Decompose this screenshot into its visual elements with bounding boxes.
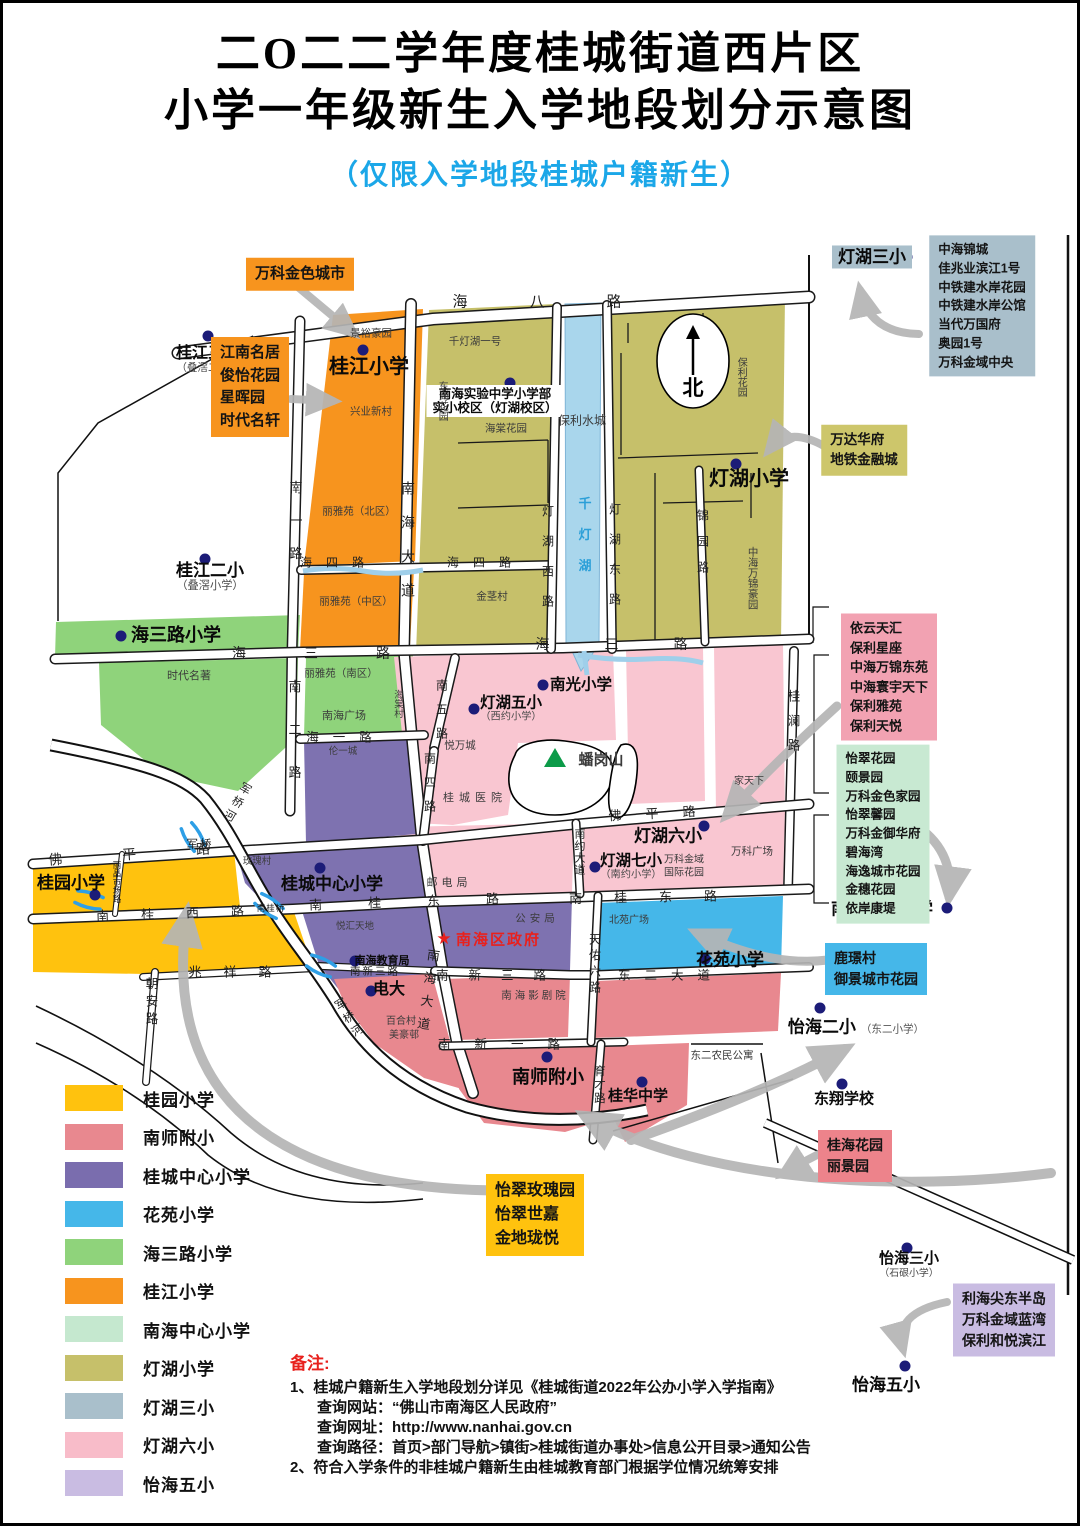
area-label-5: 南海广场: [322, 710, 366, 724]
area-label-6: 时代名著: [167, 670, 211, 684]
area-label-3: 丽雅苑（中区）: [319, 595, 393, 608]
road-label-22: 灯湖西路: [540, 505, 557, 625]
road-label-21: 南四路: [422, 752, 439, 824]
area-label-4: 丽雅苑（南区）: [304, 667, 378, 680]
road-label-18: 南海大道: [398, 481, 418, 617]
nanguang-dot: [538, 680, 549, 691]
road-label-29: 朝安路: [142, 977, 161, 1030]
legend-label-4: 海三路小学: [143, 1240, 233, 1265]
callout-wanda: 万达华府地铁金融城: [821, 425, 907, 476]
dongxiang-dot: [837, 1079, 848, 1090]
legend-swatch-6: [65, 1316, 123, 1342]
callout-jiangnan-list: 江南名居俊怡花园星晖园时代名轩: [211, 337, 289, 437]
road-label-1: 海四路: [300, 554, 378, 571]
guicheng-central-dot: [315, 863, 326, 874]
note-line-3: 查询路径：首页>部门导航>镇街>桂城街道办事处>信息公开目录>通知公告: [290, 1438, 890, 1458]
denghu-6-label: 灯湖六小: [634, 826, 702, 845]
legend-label-10: 怡海五小: [143, 1471, 215, 1496]
area-label-26: 百合村: [386, 1016, 416, 1029]
road-label-12: 南新三路: [350, 964, 400, 979]
area-label-10: 海棠花园: [485, 422, 527, 435]
legend-item-8: 灯湖三小: [65, 1393, 251, 1419]
road-label-14: 南新一路: [438, 1034, 584, 1053]
road-label-31: 千灯湖: [575, 497, 594, 590]
area-label-17: 桂城医院: [443, 792, 507, 806]
denghu-7-label: 灯湖七小（南约小学）: [600, 853, 662, 882]
road-label-13: 南新三路: [436, 965, 566, 984]
legend-item-3: 花苑小学: [65, 1201, 251, 1227]
page: 二O二二学年度桂城街道西片区 小学一年级新生入学地段划分示意图 （仅限入学地段桂…: [0, 0, 1080, 1526]
legend-item-6: 南海中心小学: [65, 1316, 251, 1342]
north-label: 北: [683, 372, 704, 402]
legend-swatch-3: [65, 1201, 123, 1227]
denghu-label: 灯湖小学: [709, 468, 789, 490]
legend-swatch-7: [65, 1355, 123, 1381]
legend-swatch-0: [65, 1085, 123, 1111]
road-label-15: 东二大道: [618, 965, 724, 984]
legend-item-2: 桂城中心小学: [65, 1162, 251, 1188]
road-label-6: 佛平路: [48, 834, 271, 869]
road-label-4: 海三路: [536, 634, 743, 654]
area-label-30: 蟠岗山: [578, 752, 623, 771]
note-line-0: 1、桂城户籍新生入学地段划分详见《桂城街道2022年公办小学入学指南》: [290, 1378, 890, 1398]
legend-label-9: 灯湖六小: [143, 1432, 215, 1457]
note-line-4: 2、符合入学条件的非桂城户籍新生由桂城教育部门根据学位情况统筹安排: [290, 1458, 890, 1478]
area-label-22: 北苑广场: [609, 915, 649, 928]
road-label-24: 锦园路: [695, 509, 712, 587]
guicheng-central-label: 桂城中心小学: [281, 874, 383, 893]
area-label-11: 保利水城: [558, 414, 606, 429]
road-label-16: 南一路: [286, 481, 305, 580]
legend-item-7: 灯湖小学: [65, 1355, 251, 1381]
road-label-3: 海三路: [232, 643, 448, 663]
road-label-10: 南桂东路: [569, 885, 749, 907]
legend-label-2: 桂城中心小学: [143, 1163, 251, 1188]
dianda-label: 电大: [373, 981, 405, 999]
road-label-28: 育才路: [591, 1065, 607, 1106]
callout-vanke-golden-city: 万科金色城市: [246, 258, 354, 291]
legend-label-3: 花苑小学: [143, 1201, 215, 1226]
legend-label-5: 桂江小学: [143, 1278, 215, 1303]
road-label-11: 兆祥路: [188, 962, 293, 981]
guihua-dot: [637, 1077, 648, 1088]
legend-swatch-8: [65, 1393, 123, 1419]
road-label-2: 海四路: [447, 554, 525, 571]
road-label-33: 军桥河: [330, 995, 368, 1043]
note-line-1: 查询网站：“佛山市南海区人民政府”: [290, 1398, 890, 1418]
legend-swatch-5: [65, 1278, 123, 1304]
road-label-17: 南二路: [285, 680, 304, 809]
haisanlu-label: 海三路小学: [131, 625, 221, 645]
area-label-18: 玫瑰村: [243, 856, 272, 868]
area-label-1: 兴业新村: [350, 405, 392, 418]
legend-label-0: 桂园小学: [143, 1086, 215, 1111]
area-label-25: 万科广场: [731, 845, 773, 858]
callout-denghu3-list: 中海锦城佳兆业滨江1号中铁建水岸花园中铁建水岸公馆当代万国府奥园1号万科金域中央: [929, 235, 1035, 376]
notes: 备注: 1、桂城户籍新生入学地段划分详见《桂城街道2022年公办小学入学指南》查…: [290, 1349, 890, 1478]
area-label-24: 万科金域国际花园: [664, 855, 704, 880]
road-label-35: 南桂桥: [257, 902, 286, 914]
road-label-32: 军桥河: [217, 779, 254, 827]
road-label-0: 海八路: [452, 291, 683, 312]
legend-item-1: 南师附小: [65, 1124, 251, 1150]
area-label-0: 景裕豪园: [350, 327, 392, 340]
area-label-28: 南海影剧院: [501, 989, 569, 1002]
area-label-7: 伦一城: [329, 746, 358, 758]
nanshi-dot: [542, 1052, 553, 1063]
legend-label-6: 南海中心小学: [143, 1317, 251, 1342]
guijiang-label: 桂江小学: [329, 356, 409, 378]
denghu-5-dot: [469, 704, 480, 715]
gov-label: 南海区政府: [456, 929, 541, 950]
road-label-30: 丽晶市场路: [111, 861, 123, 904]
guiyuan-label: 桂园小学: [37, 873, 105, 892]
legend: 桂园小学南师附小桂城中心小学花苑小学海三路小学桂江小学南海中心小学灯湖小学灯湖三…: [65, 1085, 251, 1509]
road-label-25: 桂澜路: [784, 689, 803, 763]
area-label-2: 丽雅苑（北区）: [322, 505, 396, 518]
legend-swatch-9: [65, 1432, 123, 1458]
legend-item-0: 桂园小学: [65, 1085, 251, 1111]
road-label-34: 军桥: [187, 836, 214, 852]
denghu-7-dot: [590, 862, 601, 873]
guijiang-2-label: 桂江二小（叠滘小学）: [176, 561, 244, 593]
legend-swatch-1: [65, 1124, 123, 1150]
area-label-8: 千灯湖一号: [449, 335, 502, 348]
nanguang-label: 南光小学: [550, 676, 612, 693]
road-label-20: 南五路: [434, 679, 451, 751]
callout-yicui-rose: 怡翠玫瑰园怡翠世嘉金地珑悦: [486, 1174, 584, 1256]
legend-item-4: 海三路小学: [65, 1239, 251, 1265]
haisanlu-dot: [116, 631, 127, 642]
legend-item-10: 怡海五小: [65, 1470, 251, 1496]
area-label-29: 东二农民公寓: [691, 1049, 754, 1062]
legend-label-8: 灯湖三小: [143, 1394, 215, 1419]
area-label-13: 中海万锦豪园: [745, 547, 758, 610]
nanshi-label: 南师附小: [512, 1067, 584, 1087]
yihai-5-dot: [900, 1361, 911, 1372]
note-line-2: 查询网址：http://www.nanhai.gov.cn: [290, 1418, 890, 1438]
callout-lujing: 鹿璟村御景城市花园: [825, 943, 927, 995]
yihai-2-label: 怡海二小（东二小学）: [788, 1017, 924, 1036]
road-label-27: 天佑六路: [587, 933, 604, 997]
road-label-5: 海一路: [306, 727, 386, 746]
yihai-3-label: 怡海三小（石硍小学）: [879, 1251, 939, 1279]
legend-swatch-4: [65, 1239, 123, 1265]
yihai-2-dot: [815, 1003, 826, 1014]
callout-lihai: 利海尖东半岛万科金域蓝湾保利和悦滨江: [953, 1284, 1055, 1357]
legend-label-1: 南师附小: [143, 1124, 215, 1149]
denghu-3-label: 灯湖三小: [832, 245, 912, 268]
callout-guihai: 桂海花园丽景园: [818, 1130, 892, 1182]
area-label-9: 东海花园: [435, 381, 448, 421]
area-label-19: 悦汇天地: [336, 921, 374, 933]
legend-label-7: 灯湖小学: [143, 1355, 215, 1380]
legend-swatch-10: [65, 1470, 123, 1496]
legend-item-5: 桂江小学: [65, 1278, 251, 1304]
legend-item-9: 灯湖六小: [65, 1432, 251, 1458]
callout-yiyun-list: 依云天汇保利星座中海万锦东苑中海寰宇天下保利雅苑保利天悦: [841, 614, 937, 741]
road-label-23: 灯湖东路: [607, 503, 624, 623]
road-label-19: 南海大道: [411, 947, 443, 1041]
guijiang-dot: [358, 345, 369, 356]
legend-swatch-2: [65, 1162, 123, 1188]
notes-heading: 备注:: [290, 1349, 890, 1374]
area-label-21: 公安局: [515, 912, 559, 925]
area-label-12: 保利花园: [734, 357, 747, 397]
dongxiang-label: 东翔学校: [814, 1092, 874, 1109]
guihua-label: 桂华中学: [608, 1089, 668, 1106]
gov-star-icon: ★: [436, 929, 451, 949]
denghu-5-label: 灯湖五小（西约小学）: [480, 695, 542, 724]
area-label-23: 家天下: [734, 776, 764, 789]
area-label-14: 金茎村: [476, 590, 508, 603]
nanhai-central-dot: [942, 903, 953, 914]
callout-yicui-list: 怡翠花园颐景园万科金色家园怡翠馨园万科金御华府碧海湾海逸城市花园金穗花园依岸康堤: [836, 745, 929, 924]
road-label-26: 南约大道: [571, 828, 587, 876]
area-label-15: 海棠村: [391, 690, 403, 719]
